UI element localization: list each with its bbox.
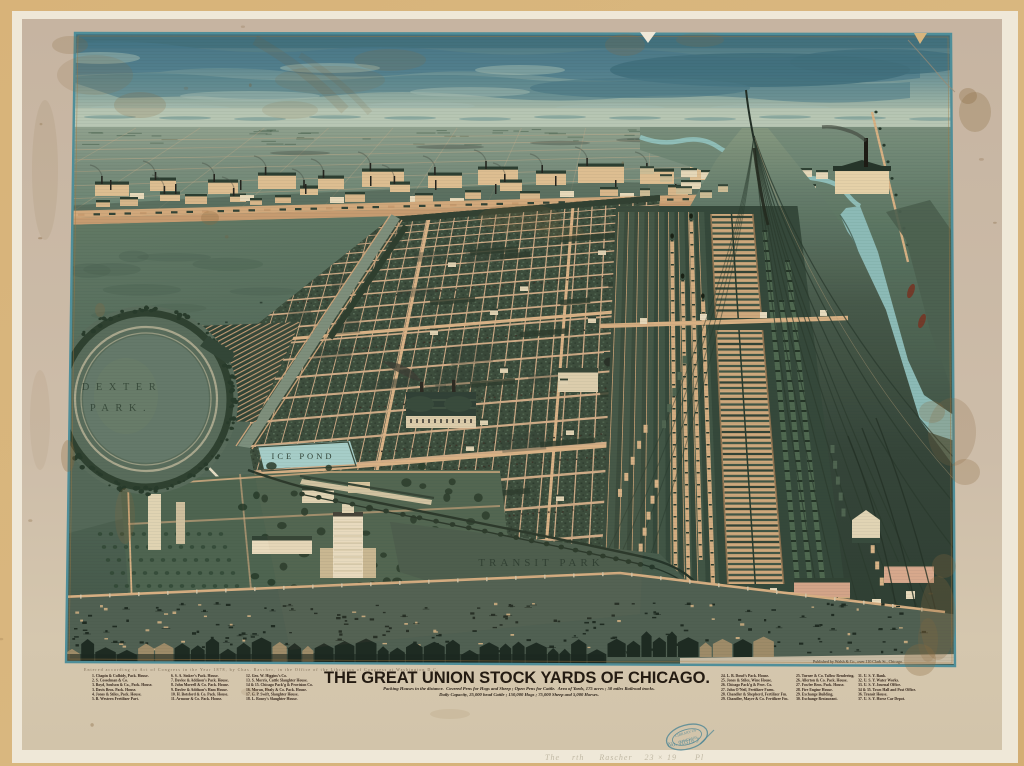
- svg-text:27. Fowler Bros. Pack. House.: 27. Fowler Bros. Pack. House.: [796, 683, 844, 687]
- svg-text:4. Jones & Stiles, Pack. Hous: 4. Jones & Stiles, Pack. House.: [92, 692, 142, 696]
- svg-text:Daily Capacity, 25,000 head Ca: Daily Capacity, 25,000 head Cattle ; 150…: [438, 692, 599, 697]
- svg-text:9. Davlee & Addison’s Ham Hou: 9. Davlee & Addison’s Ham House.: [171, 688, 228, 692]
- svg-text:31. U. S. Y. Bank.: 31. U. S. Y. Bank.: [858, 674, 886, 678]
- svg-text:29. Exchange Building.: 29. Exchange Building.: [796, 692, 833, 696]
- svg-text:25. Jones & Stiles, Wine Hous: 25. Jones & Stiles, Wine House.: [721, 679, 772, 683]
- svg-text:27. John O’Neil, Fertilizer F: 27. John O’Neil, Fertilizer Farm.: [721, 688, 774, 692]
- svg-text:14 & 15. Chicago Pack’g & Pro: 14 & 15. Chicago Pack’g & Provision Co.: [246, 683, 313, 687]
- svg-text:7. Davlee & Addison’s Pack. H: 7. Davlee & Addison’s Pack. House.: [171, 679, 229, 683]
- svg-text:37. U. S. Y. Horse Car Depot.: 37. U. S. Y. Horse Car Depot.: [858, 697, 905, 701]
- svg-text:THE GREAT UNION STOCK YARDS OF: THE GREAT UNION STOCK YARDS OF CHICAGO.: [324, 669, 710, 687]
- svg-text:33. U. S. Y. Journal Office.: 33. U. S. Y. Journal Office.: [858, 683, 901, 687]
- svg-text:36. Transit House.: 36. Transit House.: [858, 692, 887, 696]
- svg-text:18. L. Rosny’s Slaughter Hous: 18. L. Rosny’s Slaughter House.: [246, 697, 298, 701]
- svg-text:Packing Houses in the distance: Packing Houses in the distance. Covered …: [383, 686, 655, 691]
- svg-text:3. Boyd, Soulson & Co., Pack.: 3. Boyd, Soulson & Co., Pack. House.: [92, 683, 152, 687]
- svg-text:10. H. Botsford & Co. Pack. H: 10. H. Botsford & Co. Pack. House.: [171, 692, 228, 696]
- svg-text:1. Chapin & Culbidy, Pack. Ho: 1. Chapin & Culbidy, Pack. House.: [92, 674, 149, 678]
- svg-text:8. John Morrell & Co. Pack. H: 8. John Morrell & Co. Pack. House.: [171, 683, 229, 687]
- svg-text:26. Chicago Pack’g & Prov. Co: 26. Chicago Pack’g & Prov. Co.: [721, 683, 772, 687]
- svg-text:13. S. Morris, Cattle Slaught: 13. S. Morris, Cattle Slaughter House.: [246, 679, 308, 683]
- svg-text:3. Davis Bros. Pack. House.: 3. Davis Bros. Pack. House.: [92, 688, 136, 692]
- svg-text:25. Turner & Co. Tallow Rende: 25. Turner & Co. Tallow Rendering.: [796, 674, 854, 678]
- svg-text:24. L. B. Doud’s Pack. House.: 24. L. B. Doud’s Pack. House.: [721, 674, 769, 678]
- svg-text:28. Chandler & Shepherd, Fert: 28. Chandler & Shepherd, Fertilizer Fm.: [721, 692, 787, 696]
- svg-text:34 & 35. Town Hall and Post O: 34 & 35. Town Hall and Post Office.: [858, 688, 916, 692]
- svg-text:11. Armour & Co. Pack. House.: 11. Armour & Co. Pack. House.: [171, 697, 222, 701]
- svg-text:26. Allerton & Co. Pack. Hous: 26. Allerton & Co. Pack. House.: [796, 679, 848, 683]
- svg-text:29. Chandler, Mayer & Co. Fer: 29. Chandler, Mayer & Co. Fertilizer Fm.: [721, 697, 788, 701]
- svg-text:The rth Rascher 23 ×: The rth Rascher 23 × 19 Pl: [545, 753, 704, 762]
- svg-text:6. S. A. Sinker’s Pack. House: 6. S. A. Sinker’s Pack. House.: [171, 674, 219, 678]
- svg-text:12. Geo. W. Higgins’s Co.: 12. Geo. W. Higgins’s Co.: [246, 674, 287, 678]
- svg-text:5. B. Western Fertilizer Part: 5. B. Western Fertilizer Part.: [92, 697, 139, 701]
- svg-text:28. Fire Engine House.: 28. Fire Engine House.: [796, 688, 833, 692]
- svg-text:2. S. Cosselman & Co.: 2. S. Cosselman & Co.: [92, 679, 128, 683]
- svg-text:32. U. S. Y. Water Works.: 32. U. S. Y. Water Works.: [858, 679, 899, 683]
- svg-text:30. Exchange Restaurant.: 30. Exchange Restaurant.: [796, 697, 838, 701]
